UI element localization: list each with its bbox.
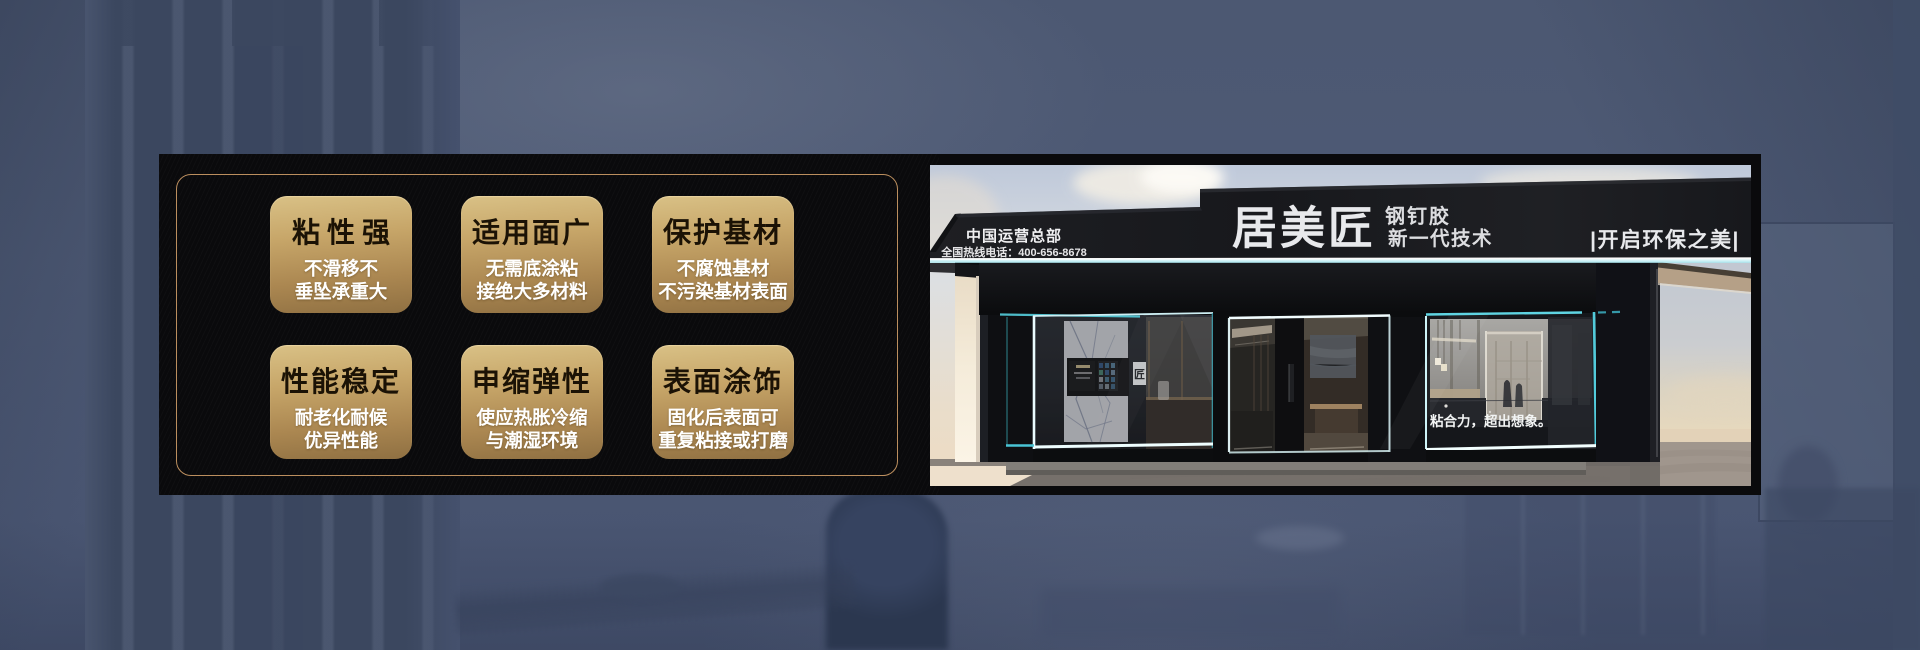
svg-text:全国热线电话：400-656-8678: 全国热线电话：400-656-8678 (940, 245, 1087, 259)
svg-text:钢钉胶: 钢钉胶 (1385, 204, 1451, 228)
svg-text:新一代技术: 新一代技术 (1388, 227, 1493, 250)
svg-text:中国运营总部: 中国运营总部 (966, 227, 1062, 245)
svg-text:粘合力，超出想象。: 粘合力，超出想象。 (1430, 413, 1552, 429)
svg-text:居美匠: 居美匠 (1232, 203, 1376, 254)
svg-text:|开启环保之美|: |开启环保之美| (1590, 228, 1740, 252)
